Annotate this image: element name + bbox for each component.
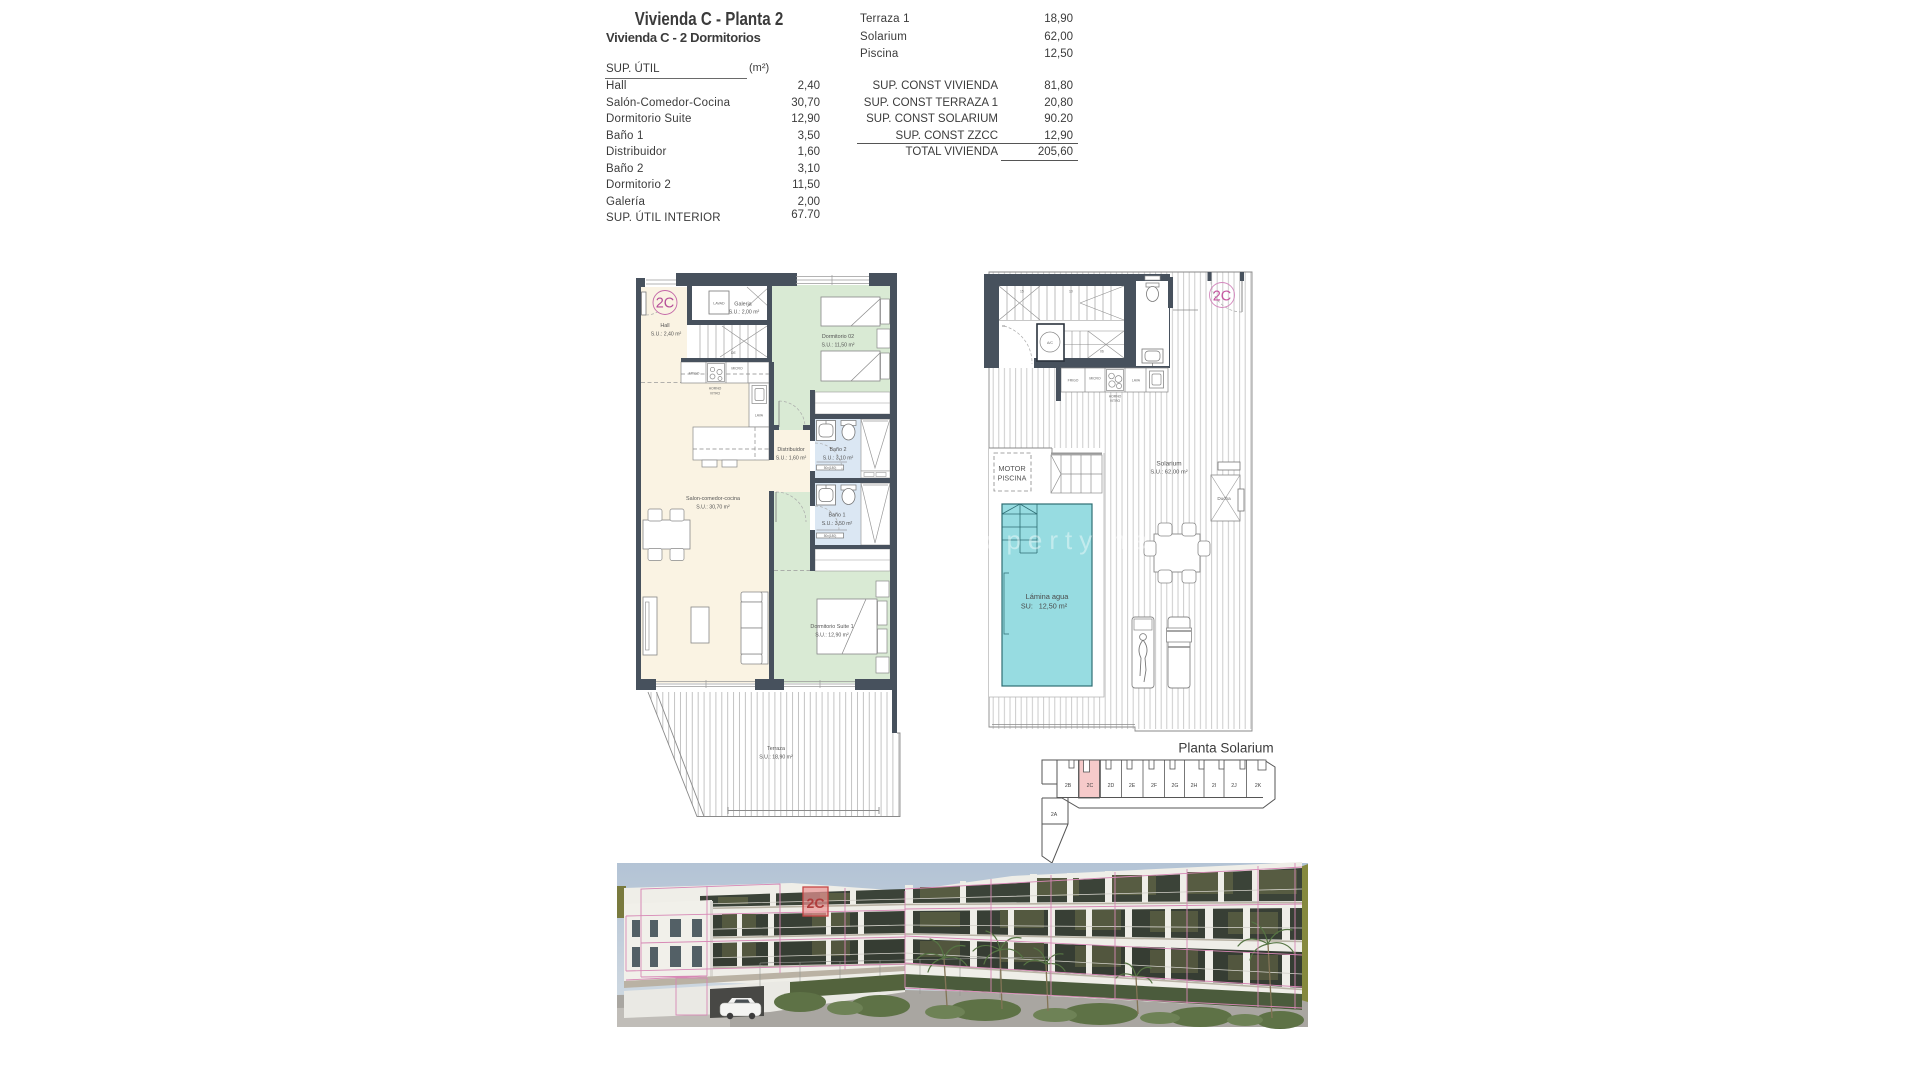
svg-text:Distribuidor: Distribuidor [777, 447, 804, 453]
svg-text:Baño 1: Baño 1 [828, 513, 845, 519]
svg-text:MICRO: MICRO [731, 367, 743, 371]
svg-text:VITRO: VITRO [1110, 399, 1121, 403]
svg-text:10: 10 [1069, 290, 1073, 294]
svg-text:operty.ne: operty.ne [985, 525, 1154, 555]
svg-text:FRIGO: FRIGO [1068, 379, 1079, 383]
svg-text:Hall: Hall [660, 323, 669, 329]
svg-text:2F: 2F [1151, 783, 1157, 789]
svg-text:2I: 2I [1212, 783, 1216, 789]
svg-text:S.U.: 3,10 m²: S.U.: 3,10 m² [823, 456, 854, 462]
svg-text:2B: 2B [1065, 783, 1072, 789]
svg-text:Galeria: Galeria [734, 302, 751, 308]
svg-text:2H: 2H [1191, 783, 1198, 789]
svg-text:SU: 12,50 m²: SU: 12,50 m² [1021, 602, 1068, 611]
svg-text:Lámina agua: Lámina agua [1026, 592, 1070, 601]
svg-text:FRIGO: FRIGO [689, 372, 700, 376]
svg-text:06: 06 [1100, 350, 1104, 354]
svg-text:Baño 2: Baño 2 [829, 447, 846, 453]
svg-text:LAVAD: LAVAD [713, 302, 725, 306]
svg-text:2C: 2C [1087, 783, 1094, 789]
svg-text:Planta Solarium: Planta Solarium [1178, 741, 1273, 756]
svg-text:50x(180): 50x(180) [824, 534, 837, 538]
svg-text:S.U.: 2,40 m²: S.U.: 2,40 m² [651, 332, 682, 338]
svg-text:2A: 2A [1051, 812, 1058, 818]
svg-text:2C: 2C [656, 296, 675, 312]
svg-text:VITRO: VITRO [710, 392, 721, 396]
svg-text:Dormitorio Suite 1: Dormitorio Suite 1 [810, 624, 853, 630]
svg-text:LAVA: LAVA [1132, 379, 1141, 383]
svg-text:Salon-comedor-cocina: Salon-comedor-cocina [686, 496, 740, 502]
svg-text:Terraza: Terraza [767, 746, 785, 752]
svg-text:50x(180): 50x(180) [824, 466, 837, 470]
svg-text:2D: 2D [1108, 783, 1115, 789]
svg-text:MICRO: MICRO [1089, 377, 1101, 381]
svg-text:S.U.: 11,50 m²: S.U.: 11,50 m² [821, 343, 854, 349]
svg-text:HORNO: HORNO [1109, 395, 1122, 399]
svg-text:S.U.: 30,70 m²: S.U.: 30,70 m² [696, 505, 730, 511]
svg-text:Dormitorio 02: Dormitorio 02 [822, 334, 854, 340]
svg-text:A/C: A/C [1047, 341, 1053, 345]
svg-text:S.U.: 62,00 m²: S.U.: 62,00 m² [1150, 470, 1187, 476]
svg-text:S.U.: 18,90 m²: S.U.: 18,90 m² [759, 755, 793, 761]
svg-text:DE: DE [731, 351, 736, 355]
svg-text:PISCINA: PISCINA [998, 474, 1027, 483]
svg-text:Ducha: Ducha [1217, 496, 1231, 501]
svg-text:S.U.: 1,60 m²: S.U.: 1,60 m² [776, 456, 807, 462]
svg-text:HORNO: HORNO [709, 387, 722, 391]
svg-text:2K: 2K [1255, 783, 1262, 789]
svg-text:2J: 2J [1231, 783, 1237, 789]
svg-text:S.U.: 12,90 m²: S.U.: 12,90 m² [815, 633, 849, 639]
svg-text:15: 15 [1020, 290, 1024, 294]
svg-text:2G: 2G [1172, 783, 1179, 789]
svg-text:S.U.: 3,50 m²: S.U.: 3,50 m² [822, 521, 853, 527]
svg-text:S.U.: 2,00 m²: S.U.: 2,00 m² [729, 310, 760, 316]
svg-text:LAVA: LAVA [755, 414, 764, 418]
svg-text:MOTOR: MOTOR [998, 464, 1025, 473]
svg-text:2E: 2E [1129, 783, 1136, 789]
svg-text:Solarium: Solarium [1156, 461, 1181, 468]
svg-text:2C: 2C [1213, 289, 1232, 305]
